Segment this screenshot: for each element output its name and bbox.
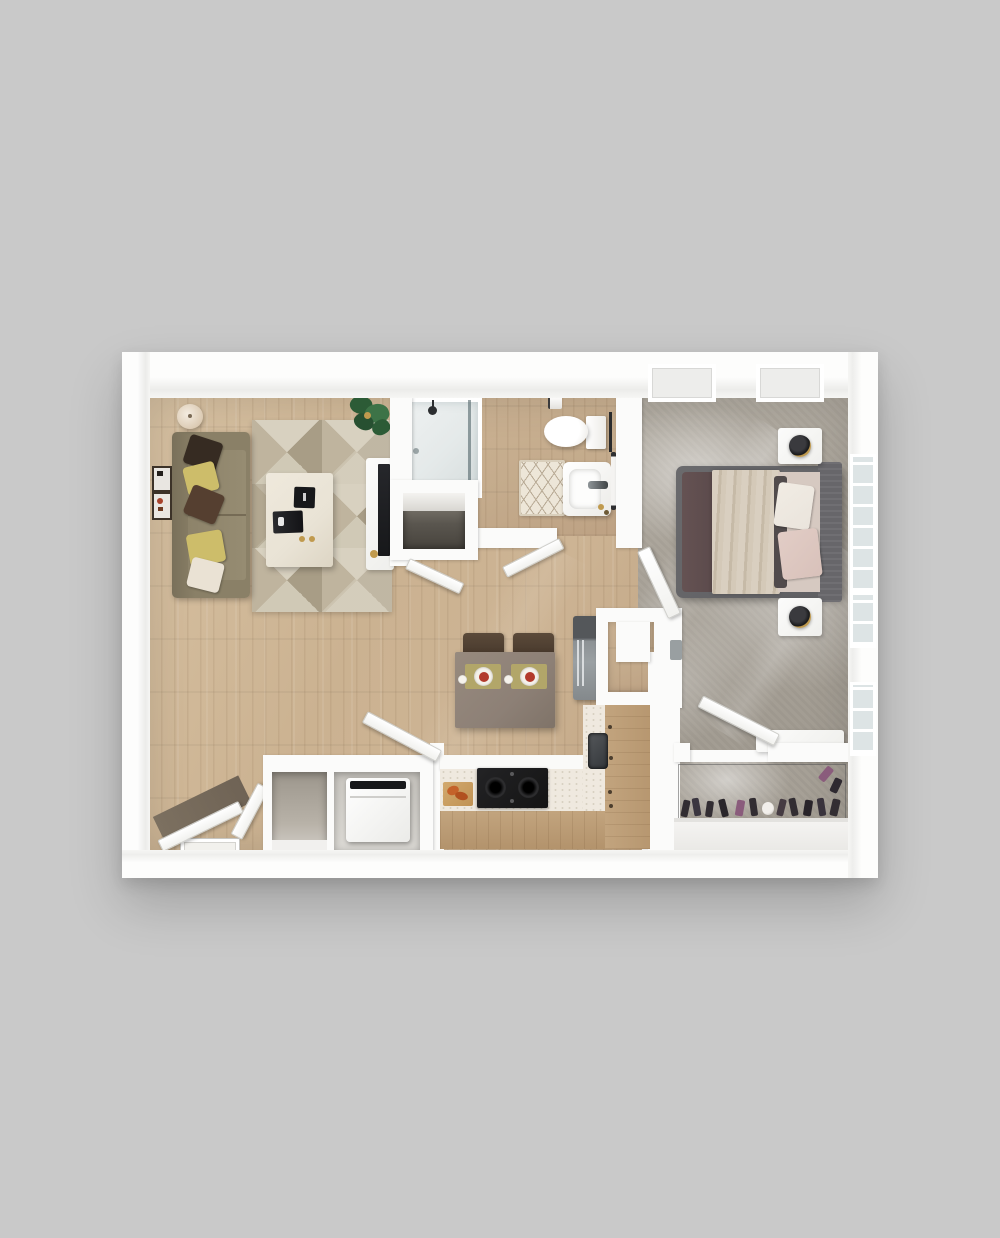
skylight <box>756 364 824 402</box>
bed-pillow-white <box>773 482 815 531</box>
plate-food <box>479 672 489 682</box>
remote-button <box>278 517 284 526</box>
table-knob <box>309 536 315 542</box>
cooktop-knob <box>510 799 514 803</box>
wall-closet-north-right <box>768 743 852 762</box>
garment <box>829 798 841 816</box>
floorplan <box>122 352 878 878</box>
bath-mat <box>519 460 565 516</box>
wall-south <box>122 850 878 878</box>
refrigerator-handle <box>577 640 579 686</box>
table-knob <box>299 536 305 542</box>
cabinet-handle <box>608 790 612 794</box>
cooktop-burner <box>518 777 539 798</box>
shower-arm <box>432 400 434 410</box>
bed-blanket <box>712 470 780 594</box>
cooktop-knob <box>510 772 514 776</box>
wall-closet-north-left <box>674 743 690 762</box>
art-detail-red <box>157 498 163 504</box>
sink-basin <box>569 469 601 509</box>
cup <box>458 675 467 684</box>
tv <box>378 464 390 556</box>
washer-control-panel <box>350 781 406 789</box>
skylight <box>648 364 716 402</box>
cooktop-burner <box>485 777 506 798</box>
shower-glass-edge <box>468 400 471 488</box>
soap-dish <box>598 504 604 510</box>
cup <box>504 675 513 684</box>
window <box>850 592 876 648</box>
garment <box>705 801 714 818</box>
toilet-bowl <box>544 416 588 447</box>
table-lamp <box>789 606 811 628</box>
wall-bedroom-west-lower <box>616 622 650 662</box>
garment <box>680 799 690 817</box>
garment <box>788 797 799 816</box>
wall-bath-east <box>616 396 642 548</box>
plate-food <box>525 672 535 682</box>
garment <box>803 799 813 816</box>
table-lamp <box>789 435 811 457</box>
headboard <box>818 462 842 602</box>
wall-art-frame <box>152 466 172 492</box>
window <box>850 454 876 594</box>
cabinet-handle <box>608 725 612 729</box>
faucet <box>588 481 608 489</box>
garment <box>817 798 827 817</box>
hanging-clothes <box>680 796 844 820</box>
bed-foot-blanket <box>682 472 712 592</box>
bed-pillow-pink <box>777 528 823 581</box>
wall-west <box>122 352 150 878</box>
refrigerator-handle <box>582 640 584 686</box>
tablet-screen-glyph <box>303 493 306 501</box>
light-switch <box>670 640 682 660</box>
shower-valve <box>413 448 419 454</box>
garment <box>776 798 787 816</box>
art-detail <box>157 471 163 476</box>
toilet-tank <box>586 416 606 449</box>
linen-niche-shelf <box>403 493 465 511</box>
dining-chair <box>463 633 504 654</box>
dining-chair <box>513 633 554 654</box>
garment <box>718 798 729 817</box>
garment <box>735 799 746 816</box>
shoe-white <box>762 802 774 815</box>
coat-cubby-shelf <box>272 840 327 850</box>
kitchen-sink <box>588 733 608 769</box>
floor-lamp-finial <box>188 414 192 418</box>
houseplant-pot <box>364 412 371 419</box>
garment <box>691 798 701 817</box>
art-detail <box>158 507 163 511</box>
toilet-plumbing <box>609 412 612 452</box>
cabinet-handle <box>609 756 613 760</box>
washer-lid-line <box>350 796 406 798</box>
soap-dish <box>604 510 609 515</box>
wall-art-frame <box>152 492 172 520</box>
console-knob <box>370 550 378 558</box>
garment <box>749 798 758 817</box>
window <box>850 682 876 756</box>
kitchen-cabinets <box>440 811 614 849</box>
closet-floor-white <box>674 822 850 850</box>
cabinet-handle <box>609 804 613 808</box>
